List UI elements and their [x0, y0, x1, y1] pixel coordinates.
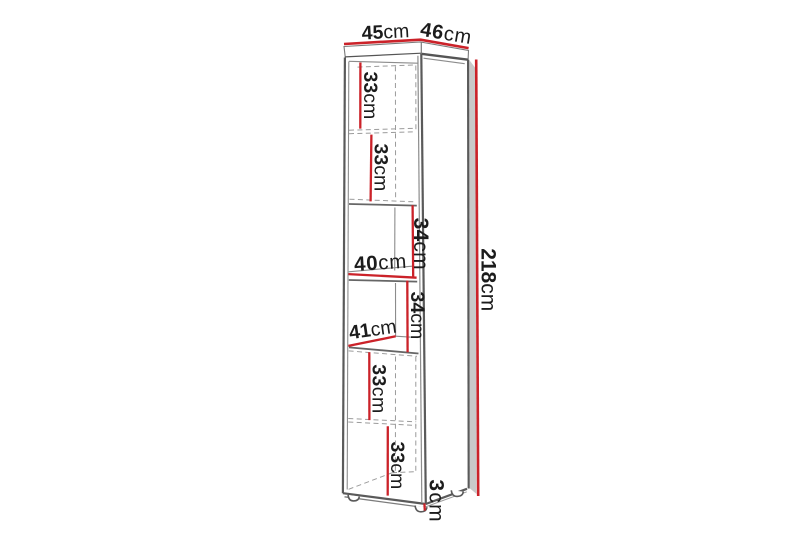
svg-text:45cm: 45cm: [361, 20, 410, 44]
svg-text:33cm: 33cm: [368, 364, 390, 413]
svg-text:33cm: 33cm: [386, 442, 408, 490]
svg-text:34cm: 34cm: [409, 218, 432, 270]
svg-text:33cm: 33cm: [370, 144, 392, 192]
svg-text:33cm: 33cm: [359, 72, 381, 120]
svg-text:40cm: 40cm: [353, 250, 407, 276]
svg-text:218cm: 218cm: [477, 248, 500, 311]
svg-text:34cm: 34cm: [406, 292, 428, 340]
svg-text:3cm: 3cm: [424, 479, 447, 523]
